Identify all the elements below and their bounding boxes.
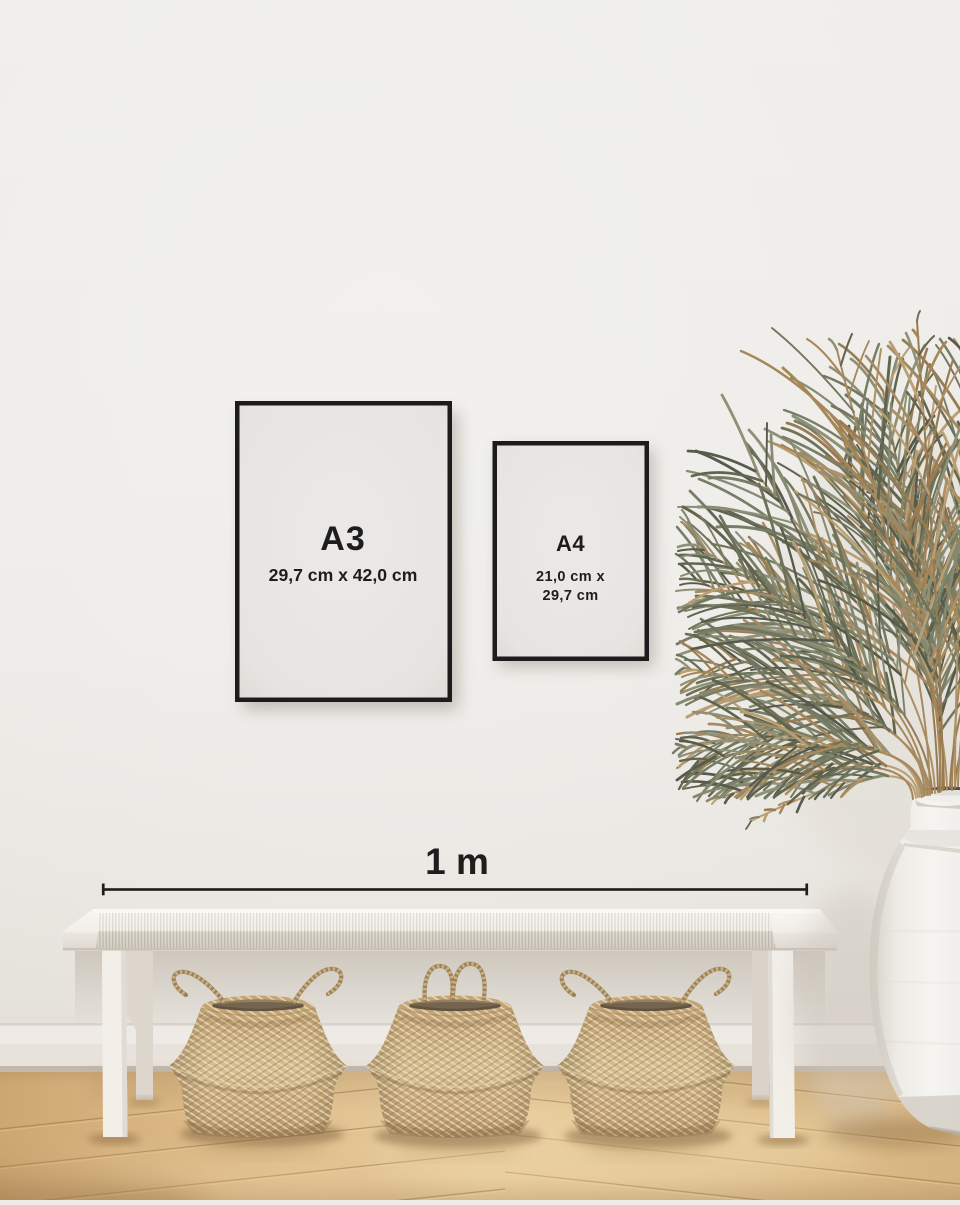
- svg-text:29,7 cm: 29,7 cm: [542, 588, 598, 604]
- svg-text:A4: A4: [556, 531, 585, 556]
- svg-text:A3: A3: [320, 520, 365, 558]
- svg-text:29,7 cm x 42,0 cm: 29,7 cm x 42,0 cm: [269, 565, 418, 585]
- svg-text:1 m: 1 m: [425, 841, 489, 882]
- svg-text:21,0 cm x: 21,0 cm x: [536, 569, 605, 585]
